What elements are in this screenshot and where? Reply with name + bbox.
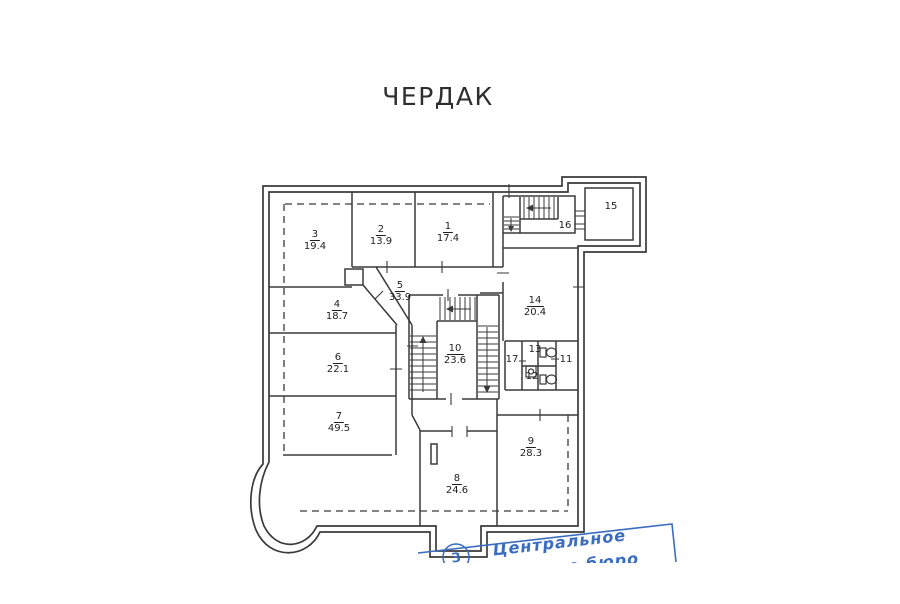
room-label-8: 8 24.6 [446, 473, 468, 496]
room-number: 3 [310, 229, 320, 241]
room-number: 11 [560, 354, 573, 365]
room-number: 4 [332, 299, 342, 311]
room-area: 28.3 [520, 448, 542, 459]
room-number: 13 [529, 344, 542, 355]
room-label-9: 9 28.3 [520, 436, 542, 459]
room-label-16: 16 [559, 220, 572, 231]
room-number: 15 [605, 201, 618, 212]
room-label-11: 11 [560, 354, 573, 365]
room-label-10: 10 23.6 [444, 343, 466, 366]
door-marks-room15 [575, 211, 585, 229]
room-label-6: 6 22.1 [327, 352, 349, 375]
label-leader-lines [519, 359, 559, 361]
room-number: 7 [334, 411, 344, 423]
room-label-3: 3 19.4 [304, 229, 326, 252]
room-area: 18.7 [326, 311, 348, 322]
room15-walls [585, 188, 633, 240]
room-area: 33.9 [389, 292, 411, 303]
room-number: 9 [526, 436, 536, 448]
scanned-floor-plan-page: ЧЕРДАК [0, 0, 900, 604]
room-number: 12 [526, 371, 539, 382]
room-area: 49.5 [328, 423, 350, 434]
room-area: 17.4 [437, 233, 459, 244]
room-number: 8 [452, 473, 462, 485]
room-label-1: 1 17.4 [437, 221, 459, 244]
room-number: 6 [333, 352, 343, 364]
room-number: 2 [376, 224, 386, 236]
room-area: 20.4 [524, 307, 546, 318]
staircase-secondary [504, 197, 554, 232]
room-number: 10 [447, 343, 464, 355]
room-label-5: 5 33.9 [389, 280, 411, 303]
room-label-14: 14 20.4 [524, 295, 546, 318]
room-number: 17 [506, 354, 519, 365]
room-area: 19.4 [304, 241, 326, 252]
room-label-12: 12 [526, 371, 539, 382]
room-label-7: 7 49.5 [328, 411, 350, 434]
room-number: 5 [395, 280, 405, 292]
vestibule-walls [345, 269, 363, 285]
room-area: 13.9 [370, 236, 392, 247]
flue-shaft [431, 444, 437, 464]
room-label-13: 13 [529, 344, 542, 355]
scan-cutoff [0, 563, 900, 604]
floor-plan-drawing: З Центральное ное бюро [0, 0, 900, 604]
room-number: 1 [443, 221, 453, 233]
toilet-icon [540, 375, 557, 384]
toilet-icon [540, 348, 557, 357]
room-area: 22.1 [327, 364, 349, 375]
room-label-15: 15 [605, 201, 618, 212]
room-area: 24.6 [446, 485, 468, 496]
room-label-4: 4 18.7 [326, 299, 348, 322]
room-label-2: 2 13.9 [370, 224, 392, 247]
room-area: 23.6 [444, 355, 466, 366]
room-number: 14 [527, 295, 544, 307]
room-label-17: 17 [506, 354, 519, 365]
room-number: 16 [559, 220, 572, 231]
